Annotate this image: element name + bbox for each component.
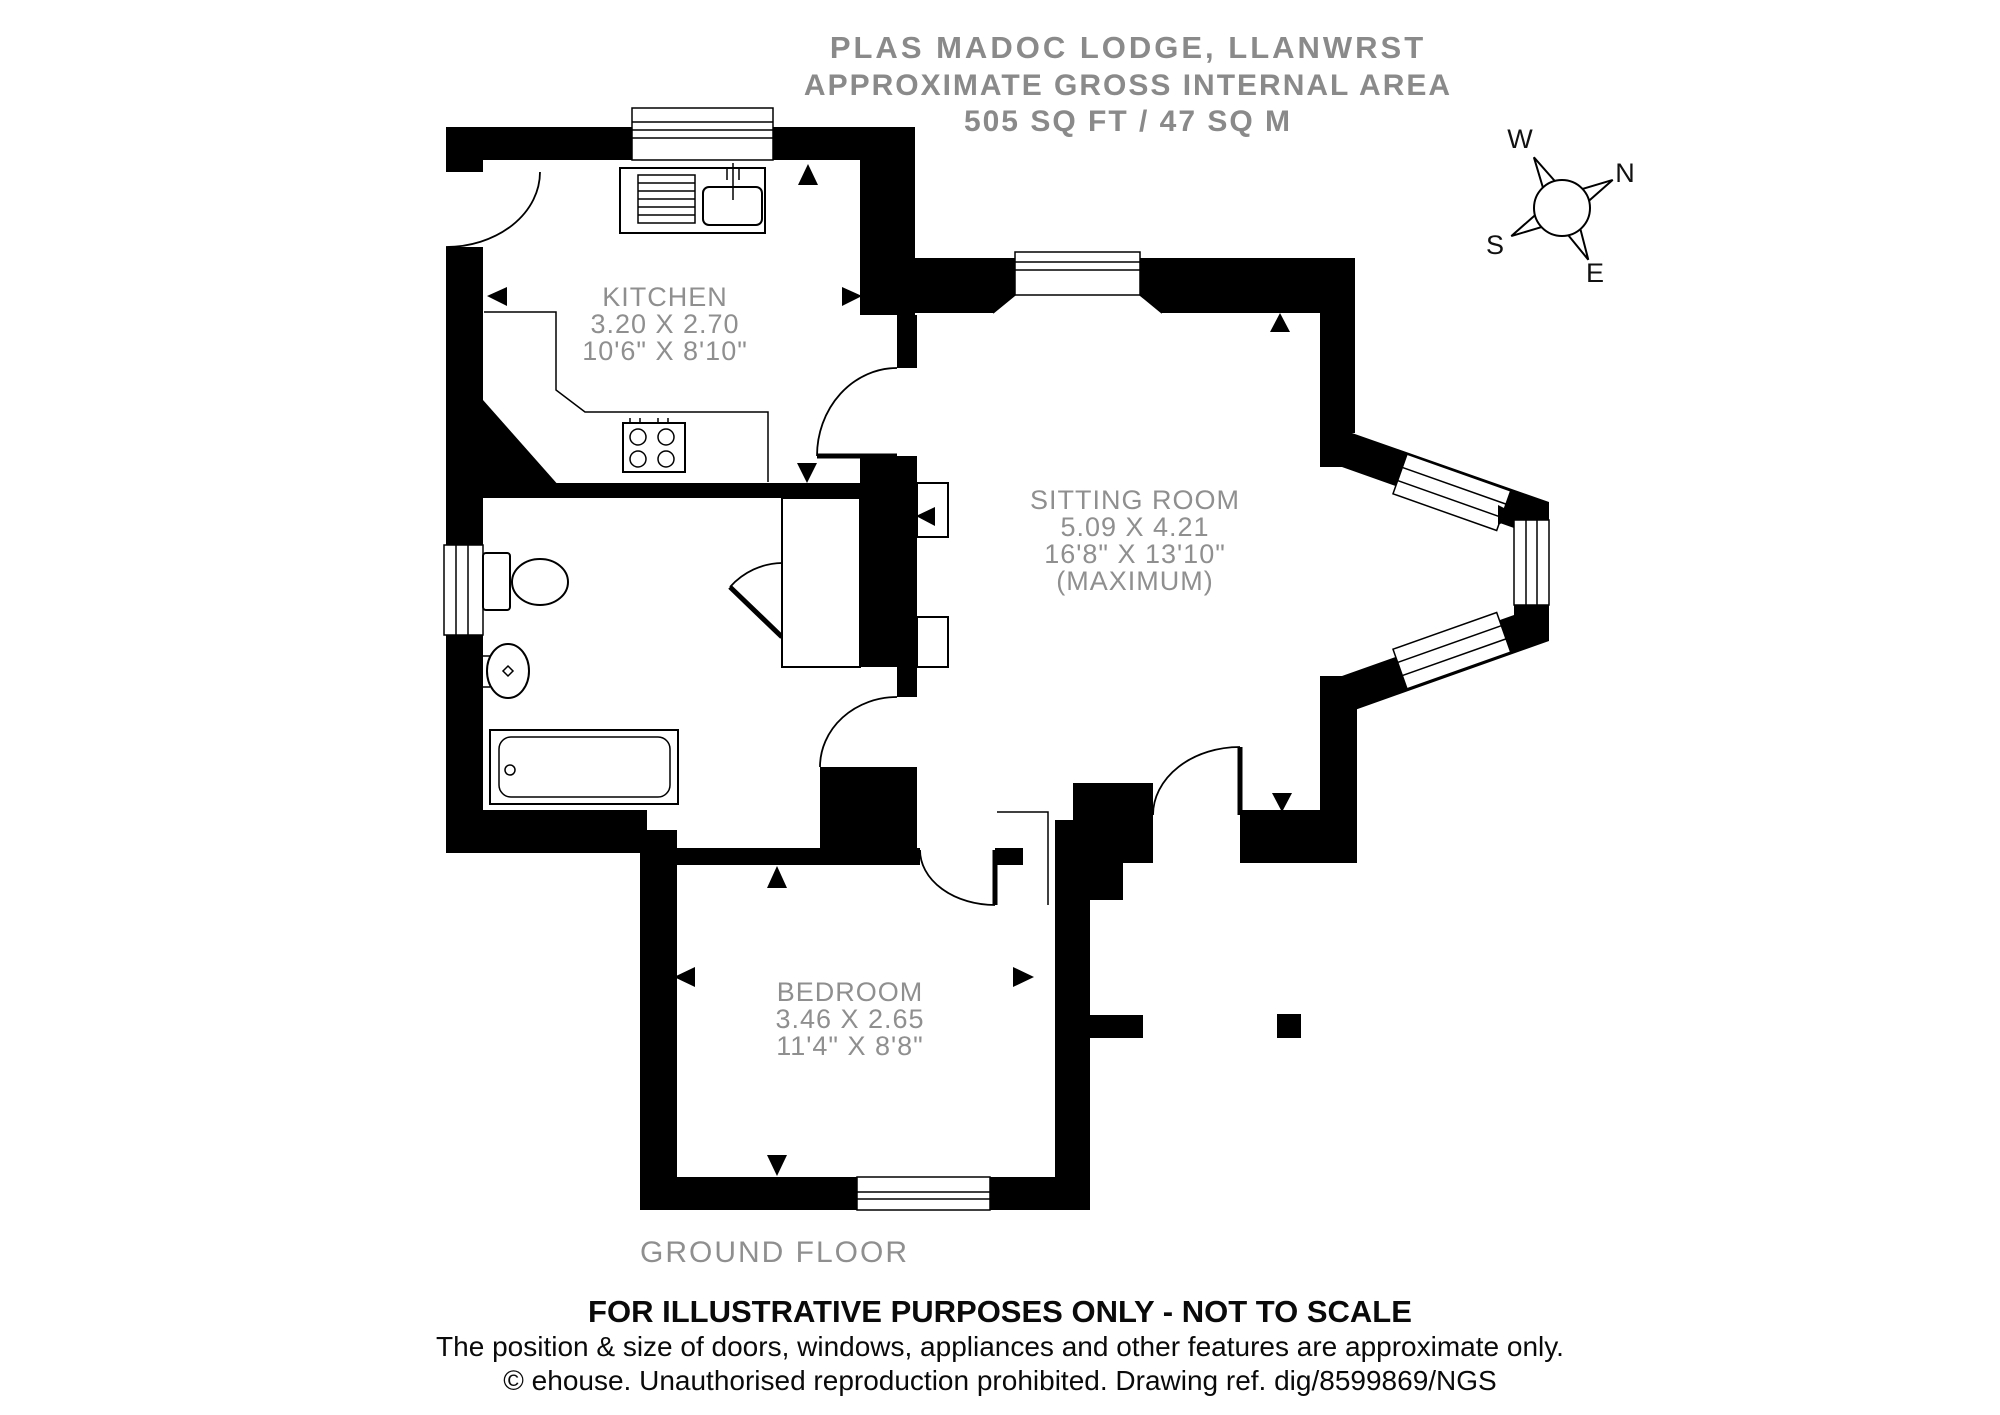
footer-disclaimer-text: The position & size of doors, windows, a… [436,1331,1564,1362]
compass-label-w: W [1507,124,1533,154]
wall-segment [1240,810,1357,863]
compass-circle [1534,180,1590,236]
wall-segment [990,1177,1090,1210]
arrow-down-icon [767,1155,787,1176]
cupboard [782,498,860,667]
page-subtitle-size: 505 SQ FT / 47 SQ M [964,105,1292,138]
fireplace-unit [917,617,948,667]
floorplan-page: N E S W PLAS MADOC LODGE, LLANWRST APPRO… [0,0,2000,1415]
window-bay-bottom [1393,612,1511,688]
footer-copyright: © ehouse. Unauthorised reproduction proh… [503,1365,1496,1396]
sitting-room-note: (MAXIMUM) [1056,566,1213,596]
sitting-room-dims-ft: 16'8" X 13'10" [1044,539,1226,569]
bedroom-label: BEDROOM [777,977,924,1007]
wall-segment [446,810,647,853]
wall-segment [1055,820,1090,865]
hob [623,418,685,472]
wall-segment [640,1177,857,1210]
sink-drainer [620,163,765,233]
window-bathroom [444,545,483,635]
kitchen-dims-ft: 10'6" X 8'10" [582,336,748,366]
wall-segment [640,848,920,865]
wall-segment [860,456,917,667]
door-arc-kitchen-sitting [817,368,897,456]
door-leaf-cupboard [730,587,782,637]
sitting-room-label: SITTING ROOM [1030,485,1240,515]
arrow-down-icon [1272,793,1292,812]
footer: FOR ILLUSTRATIVE PURPOSES ONLY - NOT TO … [436,1294,1564,1396]
wall-segment [446,247,483,545]
wall-segment [1320,700,1357,810]
sitting-room-dims-m: 5.09 X 4.21 [1060,512,1209,542]
wall-segment [640,830,677,1210]
compass-label-n: N [1615,158,1635,188]
window-bedroom [857,1177,990,1210]
toilet [483,553,568,610]
wall-segment [860,127,915,315]
bedroom-dims-m: 3.46 X 2.65 [775,1004,924,1034]
wall-segment [446,400,560,487]
bathtub [490,730,678,804]
arrow-up-icon [798,164,818,185]
compass-label-s: S [1486,230,1504,260]
door-arc-front [1153,747,1240,815]
window-kitchen [632,108,773,160]
page-subtitle-area: APPROXIMATE GROSS INTERNAL AREA [804,69,1452,102]
window-bay-right [1514,520,1549,605]
door-arc-cupboard [730,563,782,587]
wash-basin [483,644,529,698]
arrow-left-icon [674,967,695,987]
header: PLAS MADOC LODGE, LLANWRST APPROXIMATE G… [804,30,1452,138]
wall-segment [915,258,1015,313]
wall-segment [1090,810,1123,900]
arrow-up-icon [767,866,787,888]
window-bay-top [1393,454,1511,530]
wall-segment [995,848,1023,865]
wall-segment [1140,258,1355,313]
window-sitting-room-top [993,252,1162,313]
floorplan-drawing: N E S W PLAS MADOC LODGE, LLANWRST APPRO… [0,0,2000,1415]
arrow-right-icon [842,287,862,306]
kitchen-dims-m: 3.20 X 2.70 [590,309,739,339]
wall-segment [446,127,483,172]
floor-label: GROUND FLOOR [640,1236,909,1269]
door-arc-kitchen-entry [446,172,540,247]
wall-stub [1090,1015,1143,1038]
bedroom-dims-ft: 11'4" X 8'8" [776,1031,924,1061]
wall-segment [1320,313,1355,433]
wall-segment [1055,863,1090,1210]
porch-post [1277,1014,1301,1038]
wall-segment [897,315,917,368]
page-title: PLAS MADOC LODGE, LLANWRST [830,30,1426,65]
wall-segment [483,483,863,498]
compass-rose-icon: N E S W [1486,124,1635,288]
arrow-down-icon [797,463,817,483]
door-arc-bedroom [920,850,995,905]
arrow-up-icon [1270,313,1290,332]
door-arc-bathroom [820,697,897,767]
arrow-right-icon [1013,967,1034,987]
footer-disclaimer-title: FOR ILLUSTRATIVE PURPOSES ONLY - NOT TO … [588,1294,1412,1329]
arrow-left-icon [487,287,507,306]
compass-label-e: E [1586,258,1604,288]
kitchen-label: KITCHEN [602,282,728,312]
wall-segment [773,127,860,160]
wall-segment [897,667,917,697]
